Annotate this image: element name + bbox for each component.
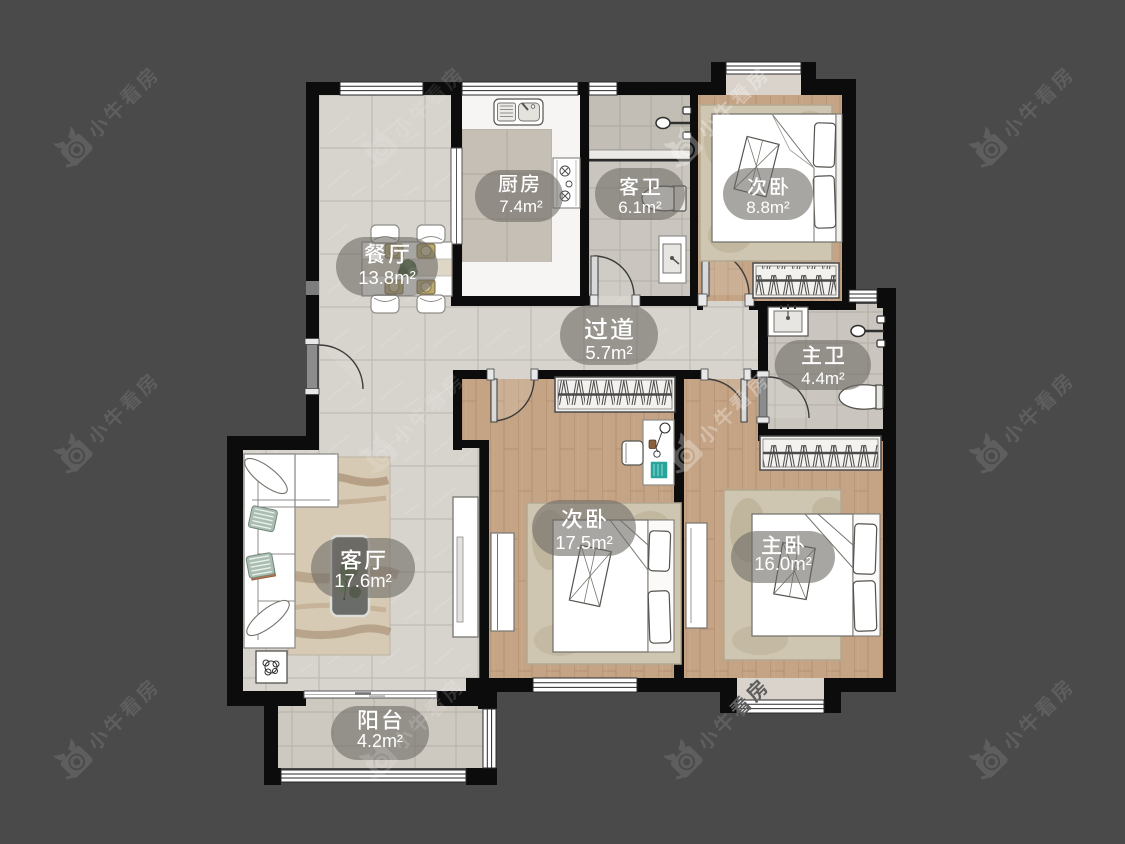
svg-text:7.4m²: 7.4m²: [499, 197, 543, 216]
svg-text:17.6m²: 17.6m²: [334, 570, 392, 591]
svg-text:8.8m²: 8.8m²: [746, 198, 790, 217]
svg-text:16.0m²: 16.0m²: [754, 553, 812, 574]
svg-text:13.8m²: 13.8m²: [358, 267, 416, 288]
svg-text:5.7m²: 5.7m²: [585, 342, 632, 363]
svg-text:17.5m²: 17.5m²: [555, 532, 613, 553]
svg-text:4.4m²: 4.4m²: [801, 369, 845, 388]
svg-text:6.1m²: 6.1m²: [618, 198, 662, 217]
